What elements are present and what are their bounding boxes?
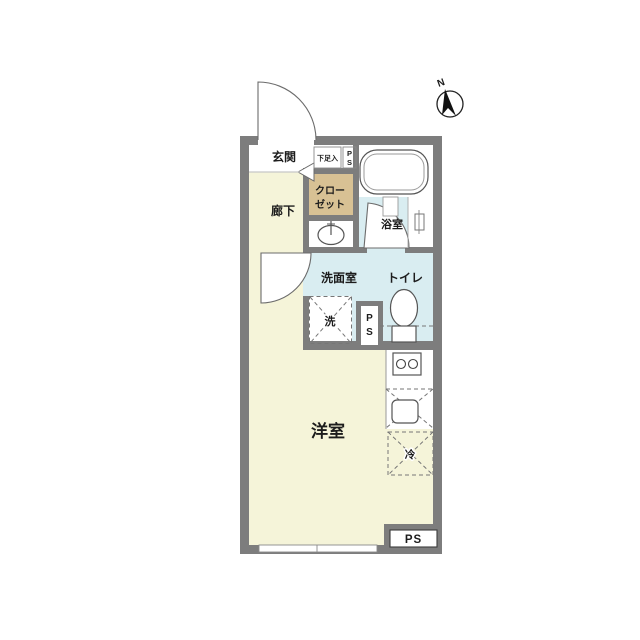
floorplan-svg: N 玄関 下足入 P S クロー ゼット 廊下 浴室 洗面室 トイレ 洗 P S… — [0, 0, 640, 640]
bathroom-label: 浴室 — [381, 217, 403, 231]
entrance-door-arc — [258, 82, 316, 140]
bath-faucet-icon — [415, 214, 424, 230]
stove-icon — [393, 353, 421, 375]
toilet-label: トイレ — [387, 271, 423, 285]
bathtub-icon — [360, 150, 428, 194]
ps-top-label-p: P — [347, 149, 352, 158]
refrigerator-label: 冷 — [405, 448, 416, 461]
ps-top-label-s: S — [347, 158, 352, 167]
washroom-label: 洗面室 — [321, 270, 357, 285]
wall-closet-bottom — [303, 215, 359, 221]
bath-step — [383, 197, 398, 216]
ps-bottom-label: PS — [405, 534, 422, 546]
wall-vanity-bottom — [303, 247, 367, 253]
kitchen-sink-icon — [392, 400, 418, 423]
ps-mid-inner — [361, 306, 378, 345]
entrance-floor — [249, 145, 359, 172]
toilet-bowl-icon — [391, 290, 418, 327]
compass-icon: N — [436, 77, 463, 117]
washer-label: 洗 — [325, 314, 336, 328]
hallway-label: 廊下 — [271, 203, 295, 218]
window-band — [259, 545, 377, 552]
shoe-storage-label: 下足入 — [317, 155, 338, 163]
window — [259, 545, 377, 552]
wall-closet-left — [303, 168, 309, 253]
toilet-tank-icon — [392, 326, 416, 342]
entrance-label: 玄関 — [272, 149, 296, 164]
closet-label-line1: クロー — [315, 185, 345, 197]
floorplan-image: N 玄関 下足入 P S クロー ゼット 廊下 浴室 洗面室 トイレ 洗 P S… — [0, 0, 640, 640]
compass-north-label: N — [436, 77, 447, 90]
closet-label-line2: ゼット — [315, 198, 345, 211]
ps-mid-label-p: P — [366, 313, 373, 324]
western-room-label: 洋室 — [311, 421, 345, 441]
ps-mid-label-s: S — [366, 327, 373, 338]
